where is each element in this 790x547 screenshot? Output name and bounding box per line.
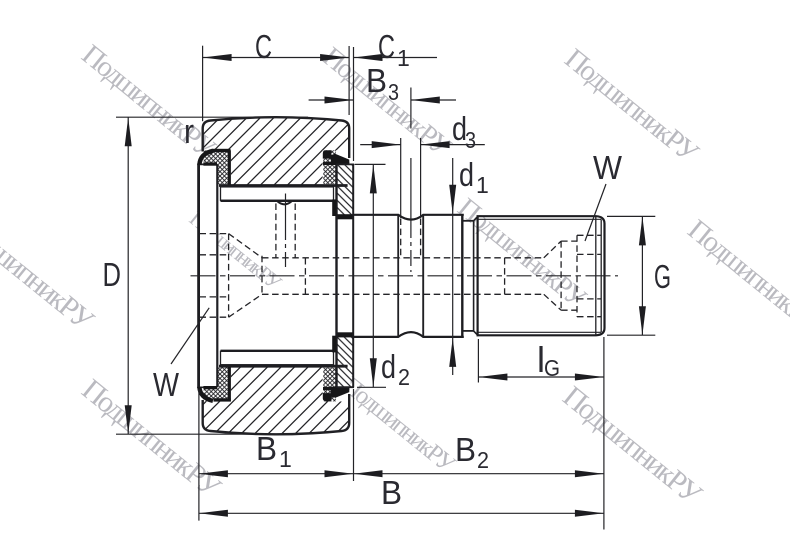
svg-text:B: B (256, 430, 277, 467)
svg-text:3: 3 (388, 79, 399, 105)
svg-text:r: r (184, 113, 194, 151)
svg-text:d: d (381, 348, 396, 385)
svg-text:C: C (378, 28, 395, 65)
svg-text:D: D (103, 256, 122, 293)
svg-text:2: 2 (477, 447, 489, 473)
svg-text:G: G (654, 258, 671, 295)
svg-text:W: W (153, 366, 180, 403)
svg-text:G: G (544, 355, 560, 381)
svg-text:1: 1 (476, 172, 489, 198)
svg-text:1: 1 (397, 45, 410, 71)
svg-text:B: B (366, 62, 387, 99)
svg-text:B: B (455, 431, 476, 468)
svg-text:1: 1 (279, 446, 292, 472)
svg-text:W: W (593, 149, 623, 186)
svg-text:C: C (255, 28, 272, 65)
svg-text:2: 2 (398, 364, 410, 390)
svg-text:d: d (459, 156, 474, 193)
svg-text:3: 3 (465, 127, 476, 153)
svg-text:B: B (381, 474, 402, 511)
